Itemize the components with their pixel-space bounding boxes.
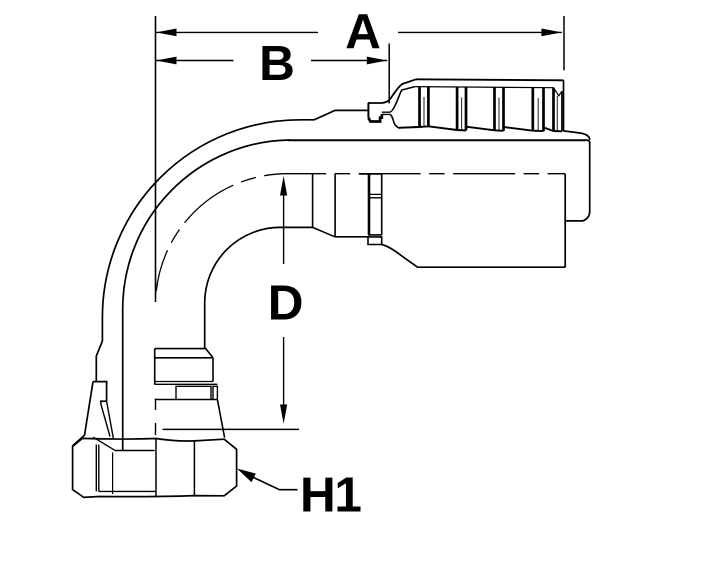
svg-text:A: A xyxy=(345,4,381,59)
svg-text:D: D xyxy=(268,276,304,331)
svg-text:B: B xyxy=(259,36,295,91)
svg-text:H1: H1 xyxy=(300,467,361,522)
